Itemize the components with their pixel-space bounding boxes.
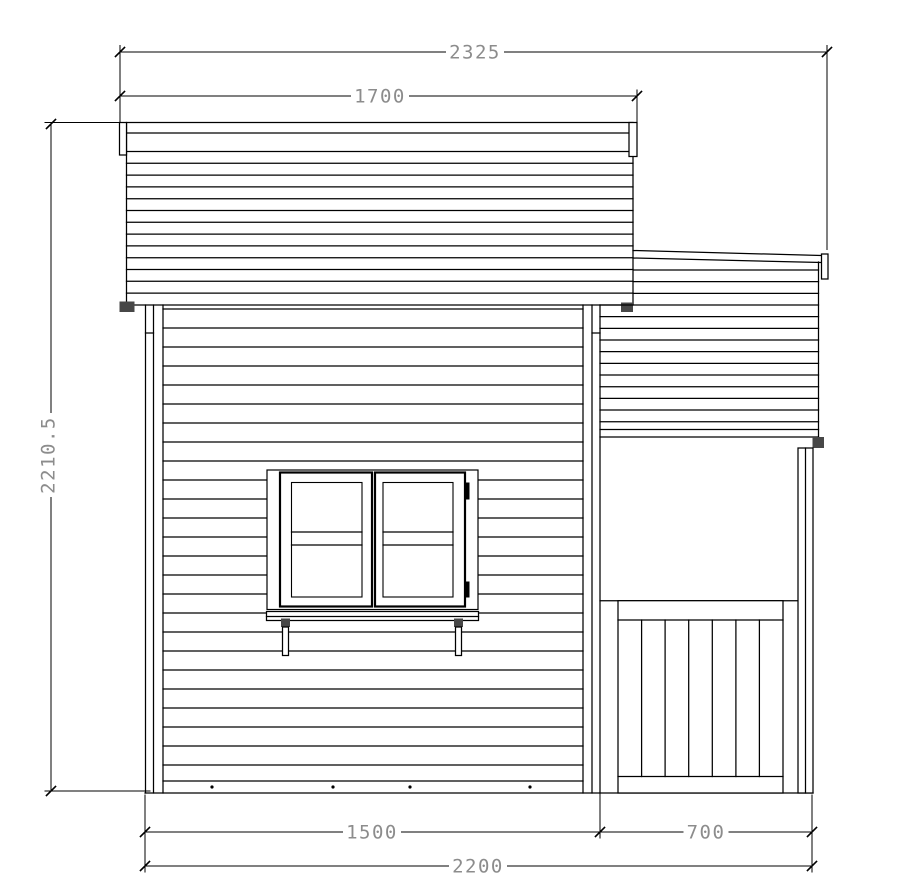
skirt-fixing-dot [331,785,334,788]
dimension-label: 2200 [452,855,504,877]
main-roof [120,123,638,313]
flower-box-block-left [281,619,290,628]
window-right-glass [383,483,453,598]
main-roof-panel [127,123,634,306]
elevation-drawing: 232517002210.515007002200 [0,0,921,891]
porch-roof-right-trim [822,254,829,279]
roof-eave-block-right [621,303,633,313]
main-roof-right-trim [629,123,637,157]
dimension-label: 700 [687,821,726,843]
window-hinge-bottom [464,582,470,598]
elevation-drawing-page: 232517002210.515007002200 [0,0,921,891]
dimension-label: 1500 [346,821,398,843]
dimension-label: 2325 [449,41,501,63]
dimension-label: 2210.5 [37,416,59,494]
skirt-fixing-dot [528,785,531,788]
flower-box-block-right [454,619,463,628]
flower-box-bracket-left [283,627,289,656]
window [267,470,478,610]
skirt-fixing-dot [210,785,213,788]
railing-panel [618,601,783,793]
window-hinge-top [464,483,470,500]
main-roof-left-trim [120,123,127,156]
roof-eave-block-left [120,302,135,313]
skirt-fixing-dot [408,785,411,788]
window-left-glass [292,483,363,598]
porch-roof-corner-block [813,437,825,448]
flower-box-bracket-right [456,627,462,656]
dimension-label-group: 2210.5 [37,413,59,497]
dimension-label: 1700 [354,85,406,107]
